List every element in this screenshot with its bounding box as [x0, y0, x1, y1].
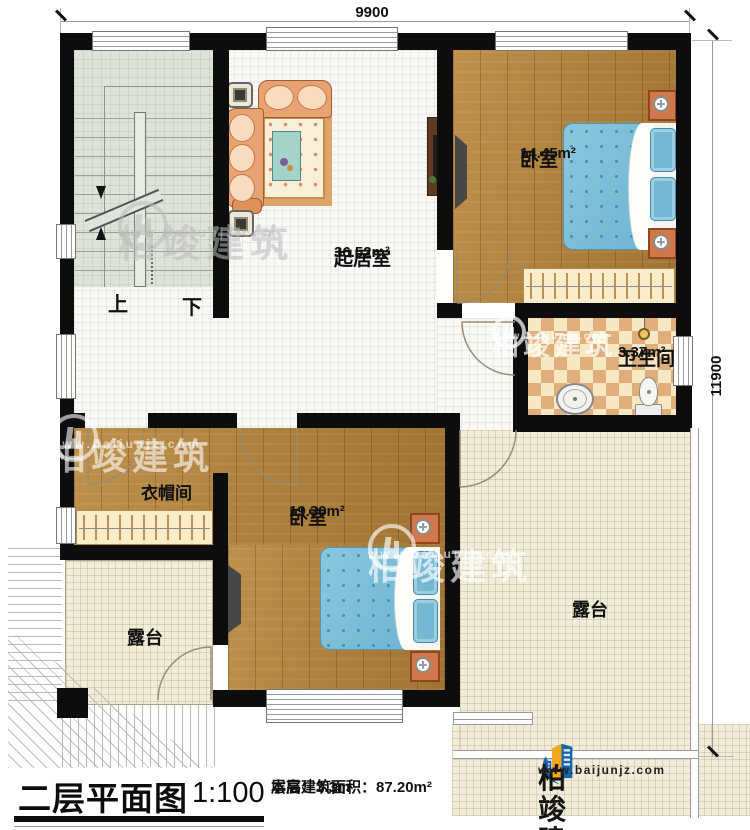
lamp-icon	[653, 234, 669, 250]
side-table	[227, 82, 253, 108]
lamp-icon	[415, 657, 431, 673]
wall	[445, 413, 460, 690]
plan-scale: 1:100	[192, 777, 265, 810]
wall	[297, 413, 460, 428]
lamp-icon	[653, 96, 669, 112]
stairwell-outline	[104, 86, 213, 287]
plan-title: 二层平面图	[18, 772, 188, 820]
wardrobe-bedroom-top	[523, 268, 675, 304]
dimension-line-top	[60, 21, 690, 22]
dimension-tick	[55, 9, 67, 21]
pendant-lamp-icon	[638, 328, 650, 340]
terrace-parapet-right	[690, 428, 699, 818]
floor-height-text: 层高：3.3m	[271, 778, 350, 798]
stair-dotted-line	[151, 246, 153, 284]
terrace-right-floor	[460, 430, 690, 750]
wall-tv	[228, 565, 241, 633]
wall	[60, 258, 74, 335]
wall	[148, 413, 237, 428]
sofa-cushion	[229, 114, 255, 142]
stair-direction-arrow-down	[96, 186, 106, 199]
side-table	[228, 210, 254, 237]
wall	[213, 690, 267, 707]
window	[673, 336, 693, 386]
wall	[74, 413, 85, 428]
wall	[213, 473, 228, 645]
wall	[513, 318, 528, 415]
window	[92, 31, 190, 51]
pillow	[413, 599, 438, 643]
wall	[676, 33, 691, 337]
wardrobe-cloakroom	[76, 510, 213, 545]
wall	[60, 398, 74, 508]
toilet	[639, 377, 658, 406]
wall	[403, 690, 460, 707]
wall-tv	[455, 135, 467, 209]
sink	[556, 383, 594, 415]
wall	[515, 303, 677, 318]
title-underline-thick	[14, 816, 264, 822]
terrace-step	[453, 712, 533, 725]
dimension-height-label: 11900	[708, 346, 724, 406]
plant	[429, 176, 436, 183]
window	[56, 507, 76, 544]
pillow	[650, 128, 676, 172]
window	[495, 31, 628, 51]
wall	[513, 415, 692, 432]
coffee-table	[272, 131, 301, 181]
extension-line	[692, 40, 732, 41]
wall	[60, 545, 213, 560]
nightstand	[648, 228, 677, 259]
nightstand	[648, 90, 677, 121]
floor-plan-canvas: 柏竣建筑 www.baijunjz.com 柏竣建筑 www.baijunjz.…	[0, 0, 750, 830]
wall	[437, 303, 462, 318]
pillow	[413, 551, 438, 595]
window	[56, 224, 76, 259]
nightstand	[410, 513, 440, 544]
nightstand	[410, 651, 440, 682]
wall	[60, 33, 74, 225]
bay-window	[266, 689, 403, 723]
dimension-tick	[684, 9, 696, 21]
pillow	[650, 177, 676, 221]
sofa-cushion	[229, 174, 255, 202]
wall	[213, 33, 229, 318]
column	[57, 688, 88, 718]
company-url: www.baijunjz.com	[538, 764, 666, 777]
lamp-icon	[415, 519, 431, 535]
window	[56, 334, 76, 399]
dimension-width-label: 9900	[340, 4, 404, 21]
window	[266, 27, 398, 51]
dimension-tick	[707, 28, 719, 40]
title-underline-thin	[14, 826, 264, 827]
stair-direction-arrow-up	[96, 227, 106, 240]
wall	[437, 33, 453, 250]
